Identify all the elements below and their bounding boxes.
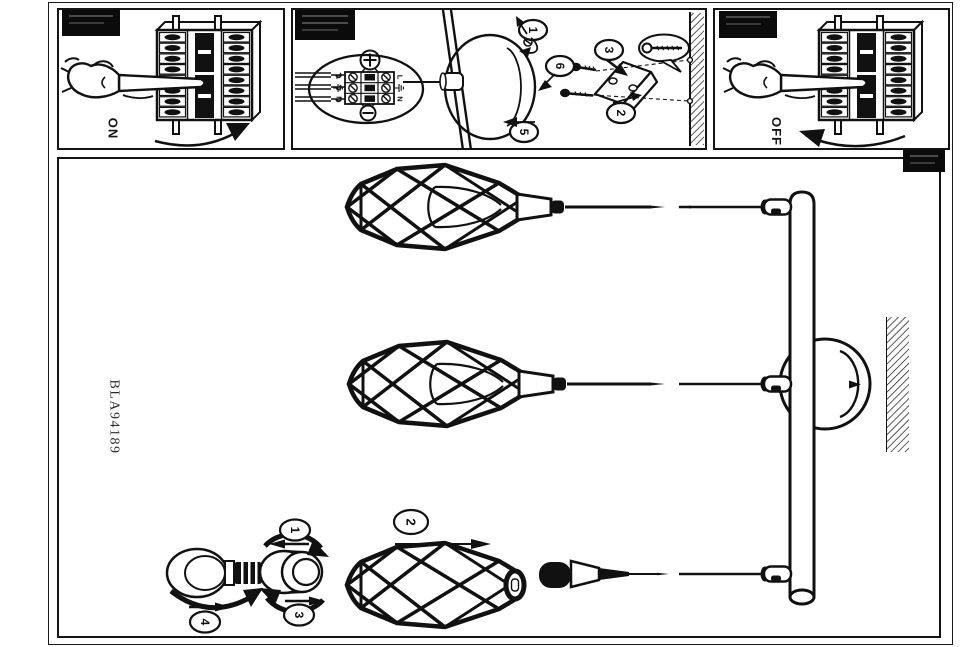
- rod-fitting: [440, 73, 463, 90]
- instruction-manual-page: ON: [0, 0, 960, 647]
- step-circle-1: 1: [269, 520, 310, 549]
- terminal-off-panel: OFF: [713, 8, 950, 150]
- cord-grip-middle: [761, 377, 792, 392]
- cage-pendant-top: [347, 165, 564, 249]
- manufacturer-label: [719, 11, 777, 38]
- mounting-bar: [790, 192, 814, 604]
- step-circle-2: 2: [394, 510, 491, 549]
- terminal-detail-magnifier: L N L N: [309, 51, 423, 124]
- terminal-block: [157, 16, 260, 134]
- svg-text:1: 1: [288, 527, 302, 534]
- wall-hatch: [691, 13, 704, 145]
- rotate-on-arrow: [155, 123, 250, 146]
- rotate-off-arrow: [799, 129, 905, 147]
- step-circle-1: 1: [519, 20, 547, 40]
- terminal-on-panel: ON: [57, 8, 285, 150]
- cage-pendant-middle: [349, 342, 566, 426]
- svg-text:5: 5: [517, 129, 531, 136]
- step-circle-6: 6: [546, 56, 574, 76]
- svg-text:3: 3: [292, 612, 306, 619]
- svg-text:3: 3: [602, 47, 616, 54]
- phillips-screwdriver-icon: [361, 51, 380, 73]
- ceiling-hatch: [887, 317, 909, 452]
- terminal-label-live: L: [335, 75, 344, 80]
- svg-text:2: 2: [404, 518, 419, 525]
- step-circle-3: 3: [284, 597, 325, 626]
- cord-grip-top: [761, 200, 792, 215]
- flat-screwdriver-icon: [361, 105, 376, 121]
- step-circle-3: 3: [595, 40, 623, 60]
- wiring-panel: L N L N: [291, 8, 707, 150]
- cord-grip-bottom: [761, 567, 792, 582]
- step-circle-2: 2: [607, 103, 635, 123]
- manufacturer-label: [295, 10, 355, 40]
- switch-off-label: OFF: [762, 115, 790, 147]
- svg-text:4: 4: [198, 619, 212, 626]
- svg-text:6: 6: [553, 63, 567, 70]
- product-code: BLA94189: [101, 371, 125, 463]
- step-circle-4: 4: [189, 603, 231, 633]
- shade-ring: [260, 551, 322, 593]
- manufacturer-label: [62, 10, 120, 36]
- svg-text:2: 2: [614, 110, 628, 117]
- svg-text:1: 1: [526, 27, 540, 34]
- cage-shade-detached: [347, 543, 524, 627]
- terminal-label-live: L: [396, 75, 405, 80]
- switch-on-label: ON: [100, 112, 126, 144]
- cord-top: [565, 206, 767, 209]
- lamp-socket-detached: [539, 561, 629, 588]
- cord-middle: [567, 383, 767, 386]
- terminal-label-neutral: N: [335, 96, 344, 101]
- terminal-label-neutral: N: [396, 96, 405, 101]
- manufacturer-label: [903, 150, 945, 172]
- cord-bottom: [629, 573, 767, 575]
- screw-callout-bubble: [639, 35, 689, 73]
- terminal-block: [819, 16, 922, 134]
- assembly-drawing: 2: [59, 159, 939, 636]
- assembly-panel: 2: [57, 157, 941, 638]
